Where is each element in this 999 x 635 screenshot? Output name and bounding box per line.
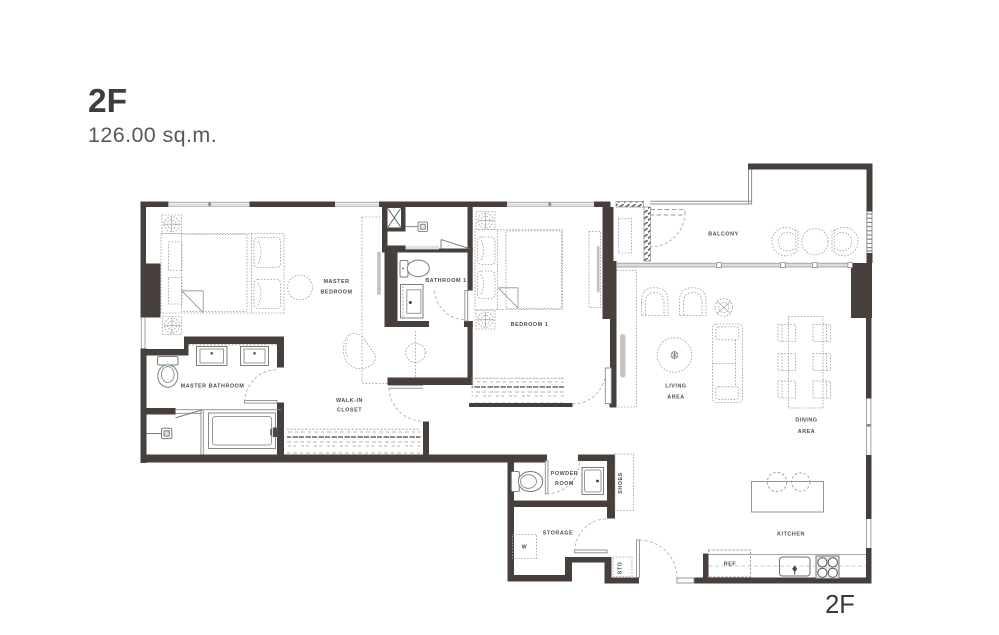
svg-text:MASTER: MASTER (323, 279, 349, 285)
svg-text:2F: 2F (825, 591, 855, 619)
svg-text:STORAGE: STORAGE (543, 531, 573, 537)
svg-text:2F: 2F (88, 83, 127, 120)
svg-text:126.00 sq.m.: 126.00 sq.m. (88, 123, 217, 147)
svg-text:CLOSET: CLOSET (337, 408, 362, 414)
svg-text:W: W (522, 545, 528, 551)
svg-text:DINING: DINING (795, 418, 817, 424)
svg-text:BALCONY: BALCONY (708, 232, 739, 238)
svg-text:REF: REF (724, 562, 737, 568)
svg-text:AREA: AREA (667, 395, 684, 401)
svg-text:WALK-IN: WALK-IN (336, 398, 363, 404)
svg-text:SHOES: SHOES (618, 472, 624, 494)
svg-text:STO: STO (618, 562, 624, 575)
svg-text:BATHROOM 1: BATHROOM 1 (425, 278, 466, 284)
svg-text:KITCHEN: KITCHEN (777, 532, 805, 538)
svg-text:ROOM: ROOM (555, 481, 574, 487)
svg-text:AREA: AREA (798, 429, 815, 435)
svg-text:BEDROOM: BEDROOM (320, 290, 352, 296)
svg-text:POWDER: POWDER (551, 471, 579, 477)
svg-text:LIVING: LIVING (665, 384, 686, 390)
svg-text:MASTER BATHROOM: MASTER BATHROOM (181, 384, 245, 390)
svg-text:BEDROOM 1: BEDROOM 1 (511, 322, 549, 328)
